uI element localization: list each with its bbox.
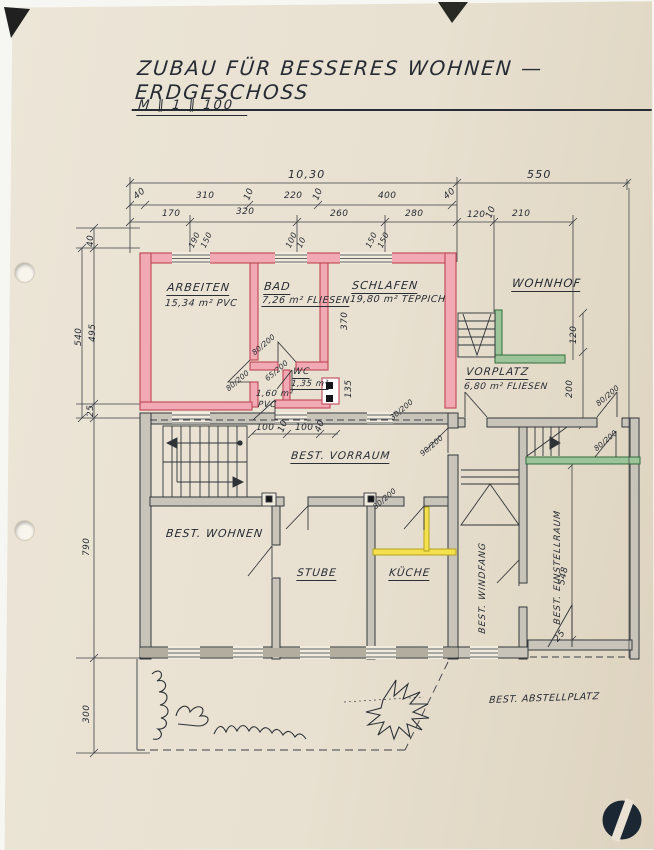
hole-punch-top <box>15 263 34 282</box>
dashed-lines <box>137 188 630 750</box>
floorplan-drawing <box>0 0 654 850</box>
scan-corner-marks <box>4 2 468 38</box>
dim-vorraum-0: 100 <box>256 423 274 433</box>
room-area-wc: 1,35 m² <box>290 379 329 390</box>
room-label-bad: BAD <box>263 280 291 295</box>
dim-row3-4: 120 <box>467 210 485 220</box>
dim-wc-depth: 135 <box>344 380 354 398</box>
room-label-vorplatz: VORPLATZ <box>465 366 529 380</box>
dim-row3-2: 260 <box>330 209 348 219</box>
room-label-stube: STUBE <box>296 567 337 581</box>
room-label-wohnhof: WOHNHOF <box>511 276 582 292</box>
dim-right-1: 200 <box>565 380 575 398</box>
dim-total-width: 10,30 <box>288 168 326 181</box>
room-area-schlafen: 19,80 m² TEPPICH <box>349 294 446 305</box>
dim-left-1: 540 <box>74 328 84 346</box>
room-area-arbeiten: 15,34 m² PVC <box>164 298 238 309</box>
room-floor-flur: PVC <box>257 400 277 410</box>
room-label-vorraum: BEST. VORRAUM <box>290 450 391 464</box>
scanned-plan-page: ZUBAU FÜR BESSERES WOHNEN — ERDGESCHOSS … <box>0 0 654 850</box>
dim-row3-1: 320 <box>236 207 254 217</box>
publisher-logo <box>603 798 642 842</box>
room-area-vorplatz: 6,80 m² FLIESEN <box>463 382 548 392</box>
dim-left-0: 40 <box>86 235 96 247</box>
dim-vorraum-2: 100 <box>295 423 313 433</box>
room-label-kueche: KÜCHE <box>388 567 431 581</box>
dim-left-5: 300 <box>82 705 92 723</box>
dim-row2-1: 310 <box>196 191 214 201</box>
room-label-windfang: BEST. WINDFANG <box>478 542 488 635</box>
room-label-schlafen: SCHLAFEN <box>351 279 419 294</box>
dim-row2-3: 220 <box>284 191 302 201</box>
yellow-walls <box>373 507 456 555</box>
dim-schlafen-depth: 370 <box>340 312 350 330</box>
room-area-flur: 1,60 m² <box>255 389 294 399</box>
dim-row3-3: 280 <box>405 209 423 219</box>
room-label-wc: WC <box>292 367 310 379</box>
dim-left-4: 790 <box>82 538 92 556</box>
dim-left-2: 495 <box>88 324 98 342</box>
dim-row3-6: 210 <box>512 209 530 219</box>
dim-row3-0: 170 <box>162 209 180 219</box>
room-area-bad: 7,26 m² FLIESEN <box>261 295 350 307</box>
dim-row2-5: 400 <box>378 191 396 201</box>
dim-right-width: 550 <box>527 168 552 181</box>
room-label-wohnen: BEST. WOHNEN <box>165 527 264 541</box>
dim-left-3: 25 <box>86 405 96 417</box>
terrace-plants <box>152 671 429 739</box>
room-label-arbeiten: ARBEITEN <box>166 281 230 296</box>
hole-punch-bottom <box>15 521 34 540</box>
drawing-scale: M ∥ 1 ∥ 100 <box>136 98 248 116</box>
dim-right-0: 120 <box>569 326 579 344</box>
